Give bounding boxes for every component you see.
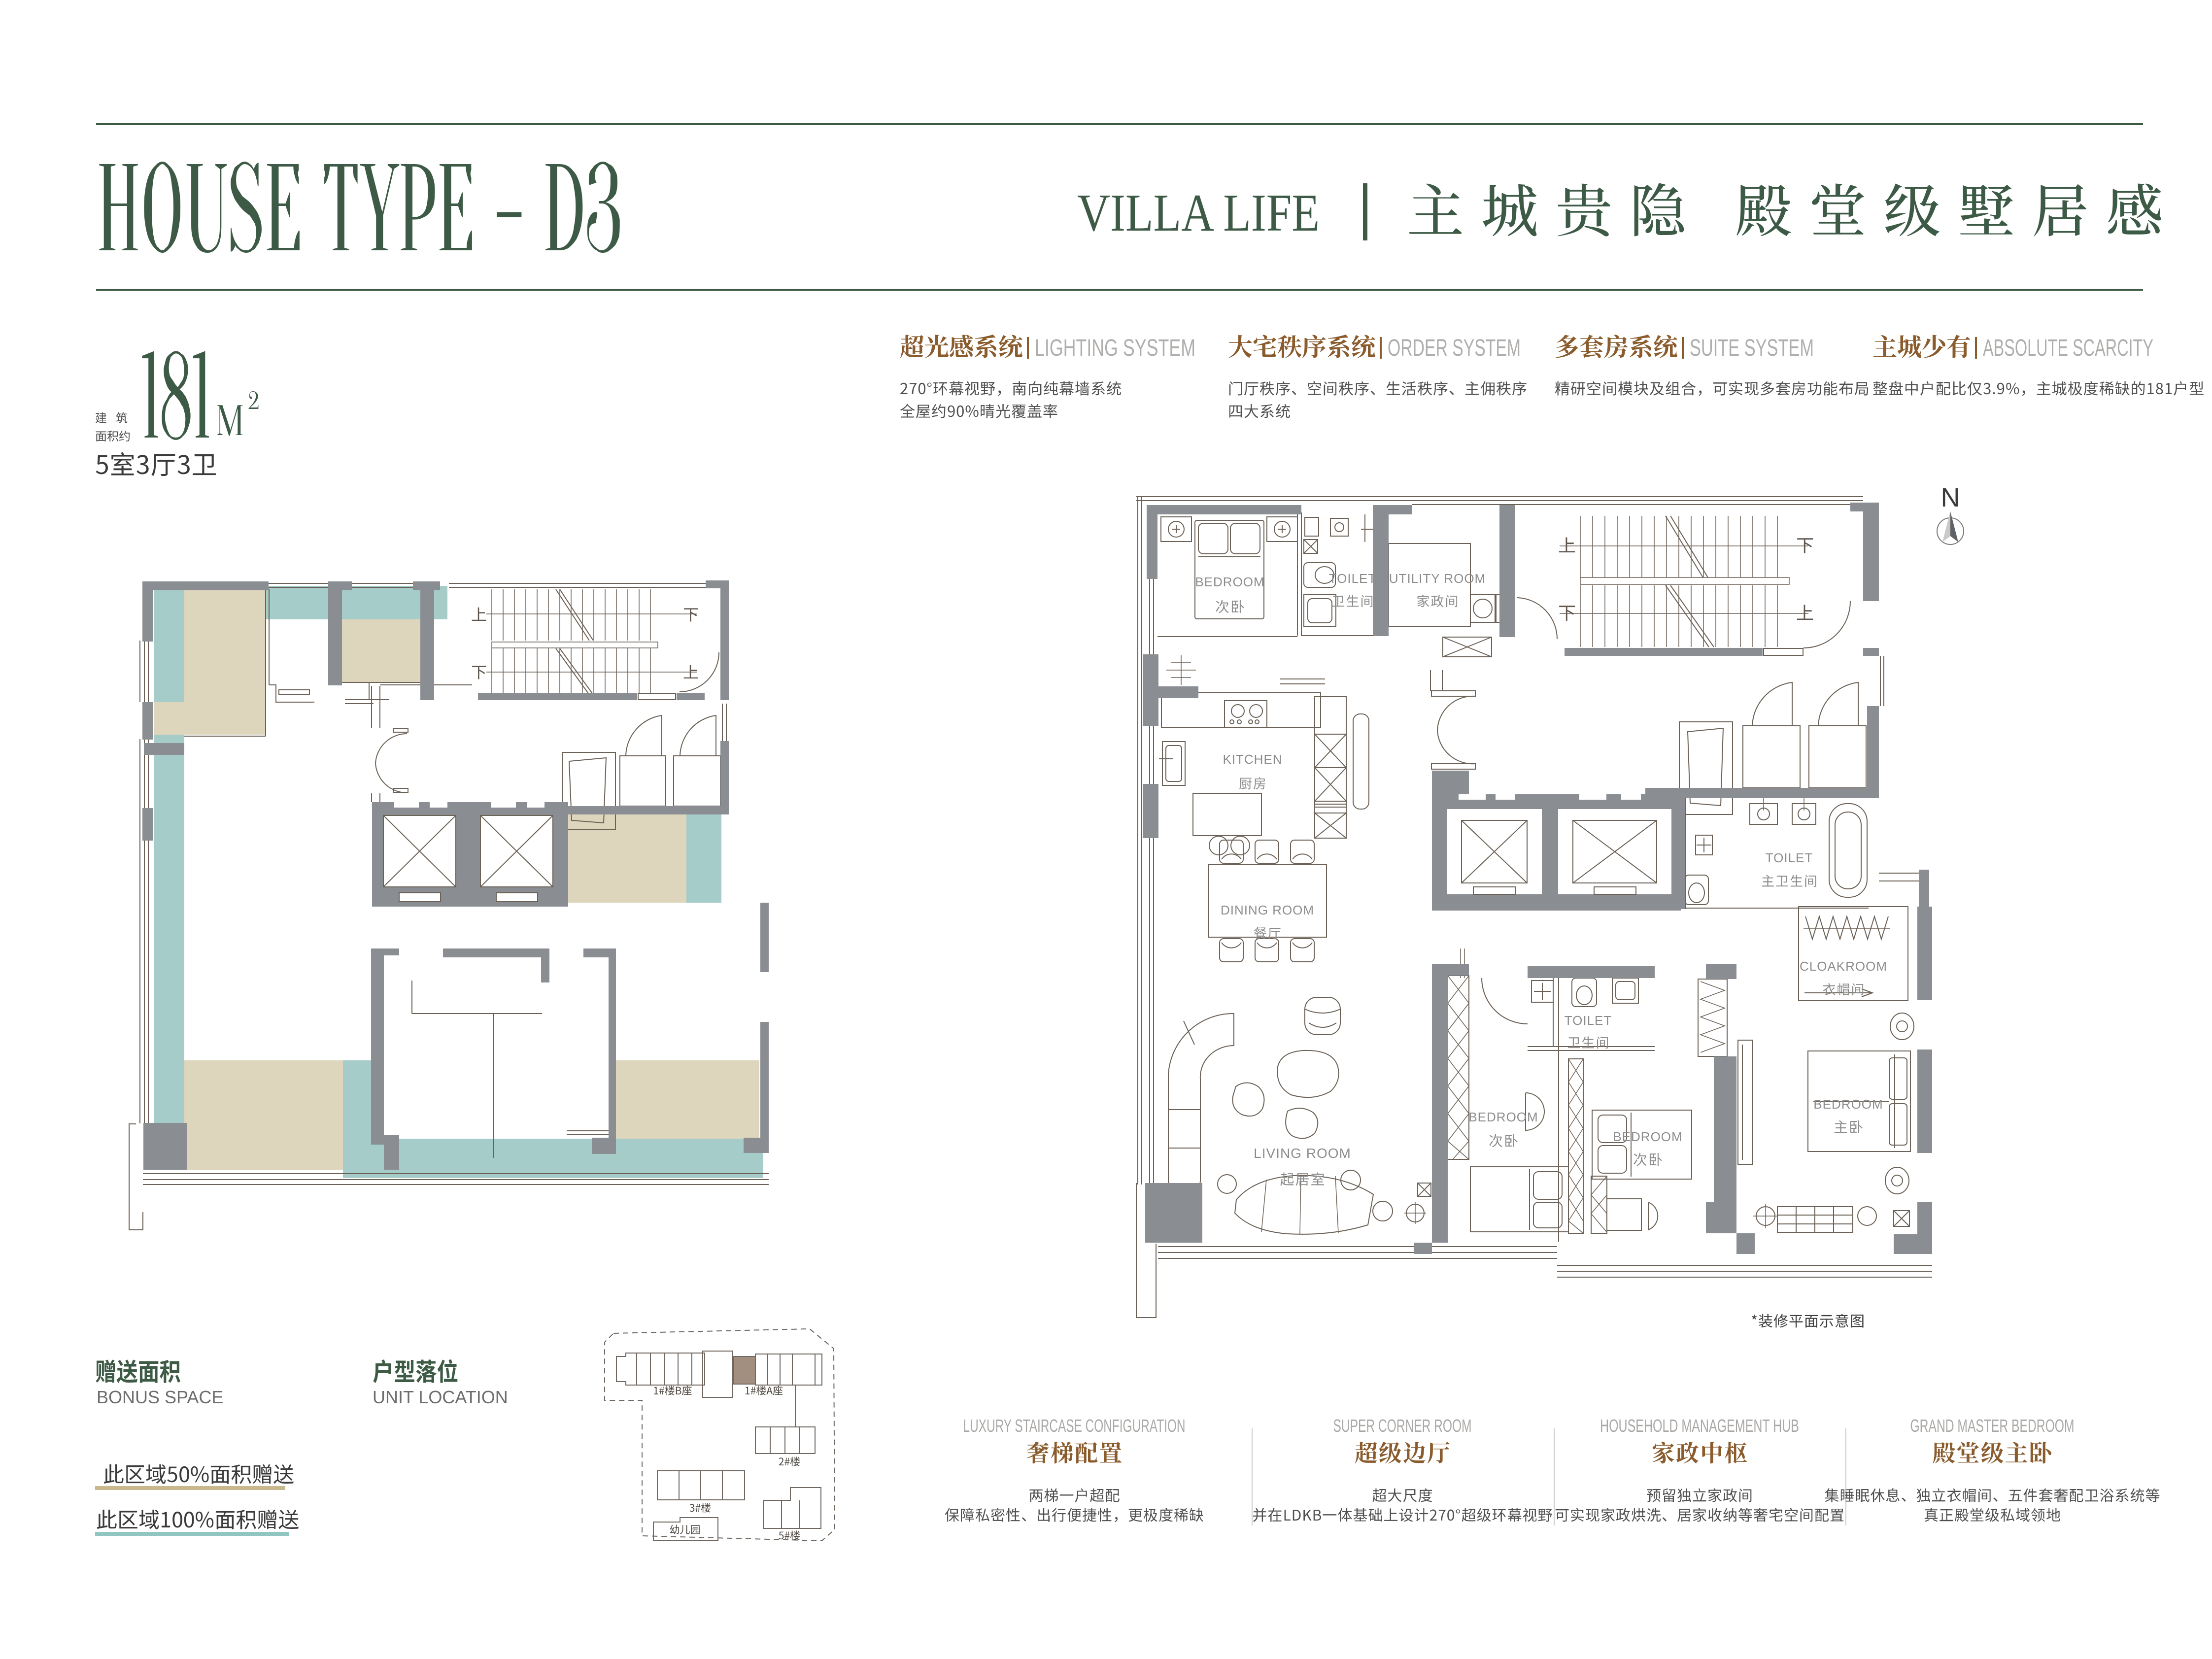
svg-text:ABSOLUTE SCARCITY: ABSOLUTE SCARCITY [1983, 335, 2153, 361]
svg-text:BEDROOM: BEDROOM [1613, 1129, 1682, 1144]
svg-text:N: N [1941, 483, 1960, 512]
svg-text:ORDER SYSTEM: ORDER SYSTEM [1388, 335, 1521, 361]
svg-text:BEDROOM: BEDROOM [1813, 1097, 1883, 1112]
svg-text:KITCHEN: KITCHEN [1223, 752, 1282, 767]
svg-text:LIVING ROOM: LIVING ROOM [1254, 1146, 1351, 1161]
svg-text:UNIT LOCATION: UNIT LOCATION [373, 1387, 508, 1407]
svg-text:SUITE SYSTEM: SUITE SYSTEM [1690, 335, 1814, 361]
svg-text:DINING ROOM: DINING ROOM [1221, 903, 1314, 917]
svg-text:CLOAKROOM: CLOAKROOM [1800, 959, 1887, 974]
svg-text:VILLA LIFE: VILLA LIFE [1077, 184, 1320, 242]
svg-text:BEDROOM: BEDROOM [1195, 575, 1264, 589]
svg-text:HOUSEHOLD MANAGEMENT HUB: HOUSEHOLD MANAGEMENT HUB [1600, 1416, 1799, 1436]
svg-text:TOILET: TOILET [1565, 1013, 1612, 1028]
svg-text:GRAND MASTER BEDROOM: GRAND MASTER BEDROOM [1910, 1416, 2075, 1436]
svg-text:TOILET: TOILET [1766, 850, 1813, 865]
svg-text:BEDROOM: BEDROOM [1468, 1110, 1538, 1124]
svg-text:LUXURY STAIRCASE CONFIGURATION: LUXURY STAIRCASE CONFIGURATION [963, 1416, 1186, 1436]
svg-text:LIGHTING SYSTEM: LIGHTING SYSTEM [1035, 335, 1195, 361]
svg-text:TOILET: TOILET [1329, 571, 1377, 586]
svg-text:BONUS SPACE: BONUS SPACE [97, 1387, 223, 1407]
svg-text:UTILITY ROOM: UTILITY ROOM [1389, 571, 1486, 586]
svg-text:SUPER CORNER ROOM: SUPER CORNER ROOM [1333, 1416, 1472, 1436]
